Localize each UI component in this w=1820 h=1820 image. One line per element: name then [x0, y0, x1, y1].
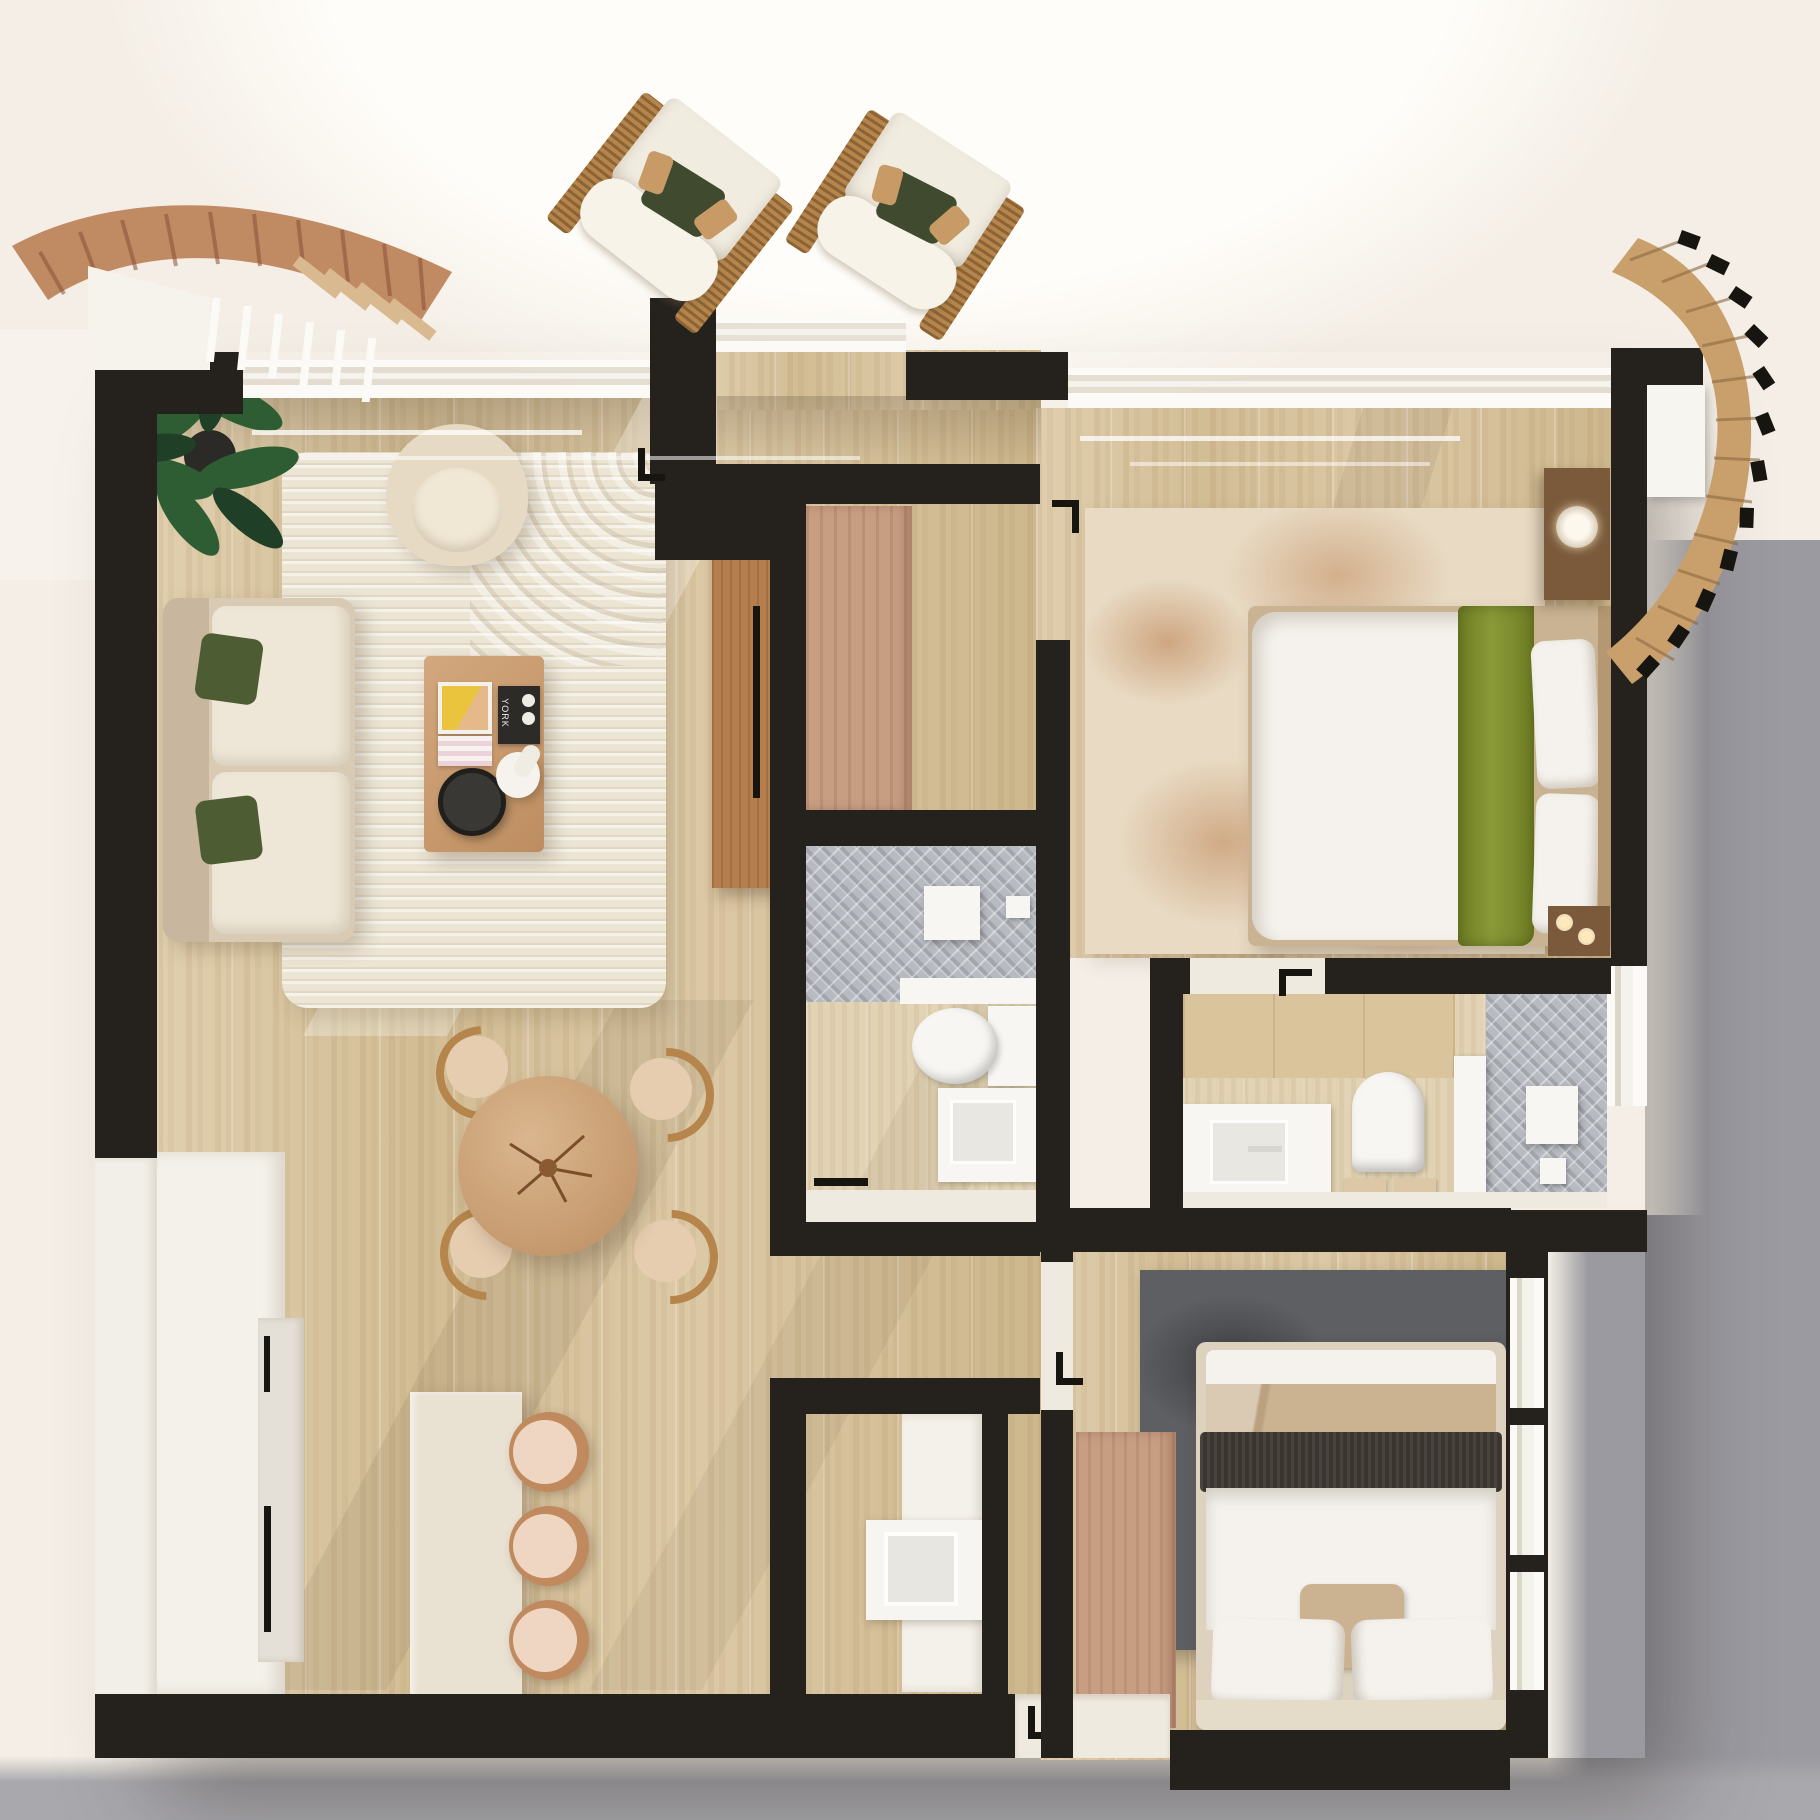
bed2-pillow-left	[1210, 1616, 1345, 1711]
magazine-york: YORK	[498, 686, 540, 744]
armchair-seat	[412, 468, 502, 552]
window-bedroom2-3	[1510, 1572, 1544, 1690]
door-mark-bath2	[1279, 969, 1312, 996]
wall-left	[95, 352, 157, 1158]
bath1-shower-valves	[1006, 896, 1030, 918]
magazine-pink	[438, 736, 492, 766]
wall-center-vertical	[1036, 640, 1070, 1222]
door-mark-master-entry	[1052, 500, 1079, 533]
bed2-dark-throw	[1200, 1432, 1502, 1492]
glass-reflection-living-2	[300, 456, 860, 460]
glass-reflection-living-1	[252, 430, 582, 435]
wall-bottom-main	[245, 1694, 1015, 1758]
bath2-divider-panel	[1454, 1056, 1486, 1204]
floor-plan-scene: YORK	[0, 0, 1820, 1820]
stool-1-seat	[513, 1420, 577, 1484]
background-gray-bottom	[0, 1756, 1820, 1820]
nightstand-bottom-candle1	[1556, 914, 1573, 931]
sofa-pillow-green-top	[194, 632, 265, 706]
bath1-vanity-basin	[950, 1100, 1016, 1164]
bed2-folded-blanket	[1206, 1384, 1496, 1436]
wall-bottom-left-corner	[95, 1694, 245, 1758]
wall-right-step-band	[1506, 1210, 1647, 1252]
magazine-york-dot2	[522, 712, 535, 725]
window-bedroom2-2	[1510, 1425, 1544, 1555]
pergola-left	[0, 170, 520, 430]
glass-reflection-master-1	[1080, 436, 1460, 441]
dining-chair-seat-se	[634, 1220, 696, 1282]
dining-chair-seat-ne	[630, 1058, 692, 1120]
louver-right	[1590, 220, 1820, 700]
nightstand-bottom-candle2	[1578, 928, 1595, 945]
closet-wardrobe	[806, 506, 912, 810]
master-duvet	[1252, 612, 1470, 940]
oven-handle	[264, 1506, 271, 1632]
wall-left-lower-white	[95, 1158, 157, 1758]
door-mark-bedroom2	[1056, 1352, 1083, 1385]
bath2-shower-valve	[1540, 1158, 1566, 1184]
washer-door	[884, 1532, 958, 1606]
wall-bottom-right	[1170, 1730, 1510, 1790]
bath1-floor-strip	[806, 1190, 1036, 1222]
bed2-footboard	[1196, 1700, 1506, 1730]
master-green-throw	[1458, 606, 1534, 946]
window-bath2-right	[1607, 966, 1647, 1106]
sofa-pillow-green-bottom	[194, 794, 263, 865]
table-centerpiece-twigs	[488, 1106, 608, 1226]
door-mark-hallway	[638, 448, 665, 481]
stool-2-seat	[513, 1514, 577, 1578]
glass-reflection-master-2	[1130, 462, 1430, 466]
bath1-counter-faucet	[814, 1178, 868, 1186]
window-bedroom2-1	[1510, 1278, 1544, 1408]
bath2-toilet	[1352, 1072, 1424, 1172]
bath1-toilet-bowl	[912, 1008, 998, 1084]
bath1-shower-head	[924, 886, 980, 940]
bath2-shower-head	[1526, 1086, 1578, 1144]
hall-door-handle	[753, 606, 760, 798]
wall-closet-top-thick	[655, 464, 775, 560]
bath2-faucet	[1248, 1146, 1282, 1152]
oven-handle-upper	[264, 1336, 270, 1392]
window-band-balcony	[716, 316, 906, 352]
wall-bath1-bottom	[770, 1222, 1040, 1256]
bedroom2-door-opening	[1041, 1262, 1073, 1410]
wall-utility-top	[770, 1378, 1040, 1414]
bath2-vanity-basin	[1210, 1120, 1288, 1184]
magazine-york-dot1	[522, 694, 535, 707]
stool-3-seat	[513, 1608, 577, 1672]
wall-bath2-left	[1150, 958, 1183, 1210]
wall-top-mid	[906, 352, 1068, 400]
magazine-york-title: YORK	[500, 698, 510, 728]
bath2-floor-strip	[1183, 1192, 1607, 1208]
bath1-ledge	[900, 978, 1036, 1004]
window-band-master	[1068, 368, 1611, 408]
kitchen-island	[410, 1392, 522, 1710]
dining-chair-seat-nw	[446, 1036, 508, 1098]
magazine-popart-cover	[442, 686, 488, 730]
wall-closet-bath1-divider	[770, 810, 1040, 846]
wall-bedroom2-top-band	[1036, 1208, 1511, 1252]
bed2-pillow-right	[1350, 1616, 1493, 1711]
wall-utility-right	[982, 1414, 1008, 1695]
bedroom2-wardrobe	[1076, 1432, 1176, 1728]
wall-utility-left	[770, 1378, 806, 1695]
